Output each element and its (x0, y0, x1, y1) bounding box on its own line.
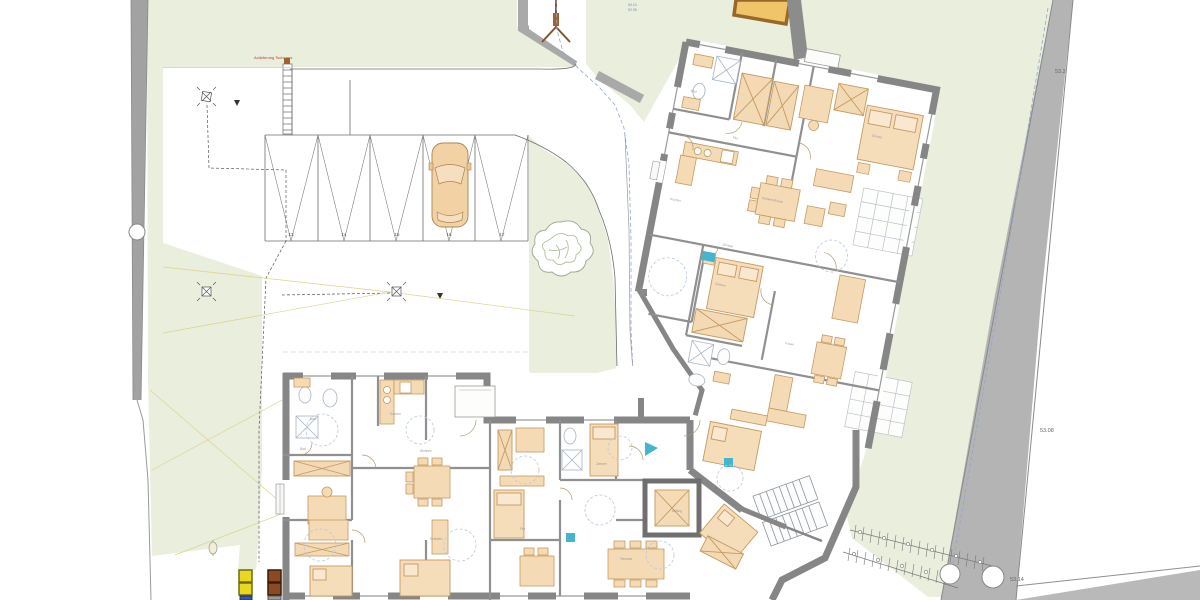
svg-text:16: 16 (446, 232, 452, 237)
svg-text:53.10: 53.10 (628, 3, 637, 7)
svg-text:Flur: Flur (520, 527, 526, 531)
svg-text:53.2: 53.2 (1055, 69, 1066, 75)
svg-text:Zimmer: Zimmer (596, 462, 608, 466)
svg-text:Wohnen: Wohnen (420, 449, 432, 453)
svg-text:Bad: Bad (310, 417, 316, 421)
svg-text:Terrasse: Terrasse (620, 557, 632, 561)
svg-text:Kochen: Kochen (390, 412, 401, 416)
svg-text:Schlafen: Schlafen (430, 537, 443, 541)
svg-text:Aufzug: Aufzug (672, 509, 682, 513)
svg-text:Bad: Bad (300, 447, 306, 451)
svg-text:14: 14 (341, 232, 347, 237)
svg-text:13: 13 (288, 232, 294, 237)
svg-text:15: 15 (394, 232, 400, 237)
svg-text:52.95: 52.95 (628, 8, 637, 12)
svg-text:53.14: 53.14 (1010, 577, 1024, 583)
svg-text:53.08: 53.08 (1040, 428, 1054, 434)
svg-text:17: 17 (499, 232, 505, 237)
